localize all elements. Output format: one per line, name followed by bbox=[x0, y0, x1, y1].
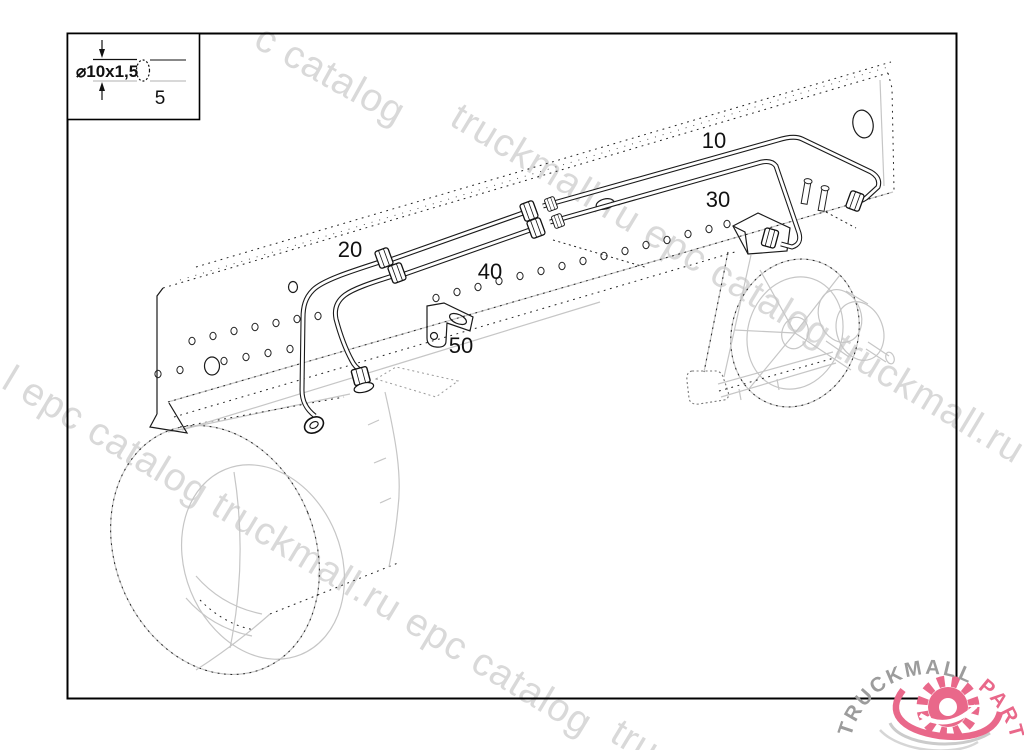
pipe-20 bbox=[302, 261, 383, 436]
diagram-canvas: c catalog truckmall.ru epc catalog truck… bbox=[0, 0, 1024, 750]
fitting-block bbox=[733, 213, 790, 254]
callout-50: 50 bbox=[449, 333, 473, 358]
bolt-fitting bbox=[349, 366, 375, 395]
legend-dimension: ⌀10x1,5 bbox=[76, 62, 138, 81]
callout-20: 20 bbox=[338, 237, 362, 262]
watermark-text: l epc catalog truckmall.ru epc catalog bbox=[0, 358, 600, 745]
legend-ref: 5 bbox=[155, 88, 166, 109]
legend-box: ⌀10x1,5 5 bbox=[68, 34, 200, 120]
parts-diagram-page: c catalog truckmall.ru epc catalog truck… bbox=[0, 0, 1024, 750]
logo-gear-icon bbox=[920, 681, 976, 733]
callout-10: 10 bbox=[702, 128, 726, 153]
clamp-pin bbox=[817, 185, 829, 212]
pipe-40 bbox=[335, 275, 396, 395]
watermark-band-top: c catalog truckmall.ru epc catalog truck… bbox=[248, 16, 1024, 512]
callout-30: 30 bbox=[706, 187, 730, 212]
watermark-band-bottom: l epc catalog truckmall.ru epc catalog t… bbox=[0, 358, 809, 750]
watermark-text: truckmall.ru epc catalog truckmall.ru ep… bbox=[443, 95, 1024, 512]
callout-40: 40 bbox=[478, 259, 502, 284]
clamp-pin bbox=[800, 178, 812, 205]
watermark-text: truckmall.ru bbox=[603, 711, 808, 750]
frame-rail-drawing bbox=[150, 62, 894, 433]
